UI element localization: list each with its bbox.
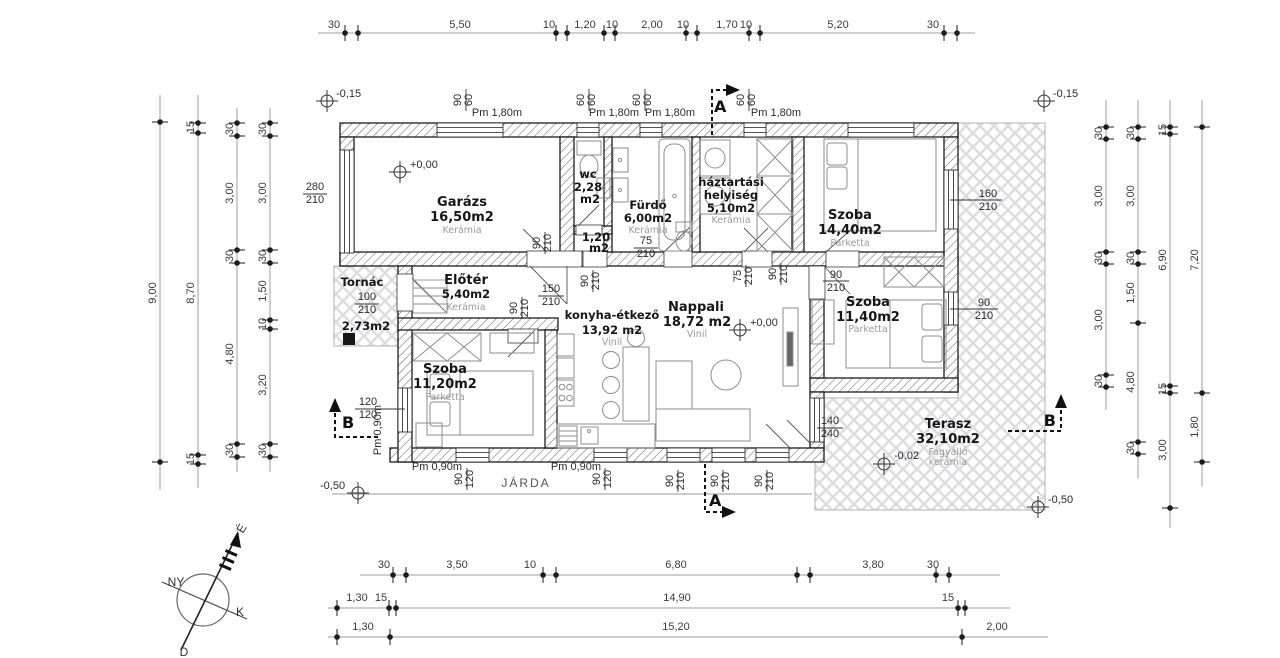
wall-bath-utility — [692, 137, 700, 252]
wardrobe-3 — [413, 333, 481, 361]
chair — [603, 377, 620, 394]
door-size: 210 — [720, 472, 732, 490]
utility-door-gap — [742, 251, 772, 267]
sofa-left — [656, 361, 692, 409]
terrace-door-3 — [756, 448, 789, 462]
dim-label: 3,20 — [257, 374, 269, 395]
compass-north: É — [233, 521, 250, 535]
dim-label: 30 — [224, 444, 236, 456]
garage-window — [437, 123, 503, 137]
dim-label: 10 — [543, 19, 555, 31]
dim-label: 4,80 — [1125, 371, 1137, 392]
door-size: 210 — [637, 248, 655, 260]
window-size: 210 — [975, 310, 993, 322]
room-name: helyiség — [704, 188, 758, 202]
dim-label: 30 — [1125, 442, 1137, 454]
dim-label: 8,70 — [185, 282, 197, 303]
dim-label: 1,30 — [352, 621, 373, 633]
room-unit: m2 — [580, 192, 600, 206]
dim-label: 3,80 — [862, 559, 883, 571]
elevation-value: -0,50 — [1048, 494, 1073, 506]
room-name: Szoba — [423, 362, 467, 377]
wall-bedroom-bottom — [810, 378, 958, 392]
room-floor: Parketta — [830, 238, 869, 249]
room-area: 16,50m2 — [430, 210, 494, 225]
parapet-label: Pm 1,80m — [751, 107, 801, 119]
door-size: 210 — [675, 472, 687, 490]
room-area: 5,10m2 — [707, 201, 755, 215]
room-floor: Kerámia — [628, 225, 667, 236]
room-area: 14,40m2 — [818, 223, 882, 238]
dim-label: 1,70 — [716, 19, 737, 31]
porch-door-gap — [397, 274, 413, 311]
dim-label: 30 — [1093, 127, 1105, 139]
window-size: 90 — [978, 297, 990, 309]
floor-plan-page: 30 5,50 10 1,20 10 2,00 10 1,70 10 5,20 … — [0, 0, 1280, 658]
door-size: 100 — [358, 291, 376, 303]
dim-label: 30 — [378, 559, 390, 571]
elevation-marker — [347, 482, 369, 504]
compass-west: NY — [168, 575, 185, 589]
door-size: 90 — [830, 269, 842, 281]
dim-label: 14,90 — [663, 592, 691, 604]
room-name: Előtér — [444, 273, 488, 288]
room-floor: Kerámia — [711, 215, 750, 226]
door-size: 210 — [519, 299, 531, 317]
elevation-value: -0,02 — [894, 450, 919, 462]
door-size: 210 — [590, 272, 602, 290]
door-size: 210 — [743, 267, 755, 285]
dim-label: 7,20 — [1189, 249, 1201, 270]
bath-door-gap — [664, 251, 692, 267]
room-area: 2,73m2 — [342, 319, 390, 333]
dim-label: 6,90 — [1157, 249, 1169, 270]
section-label: B — [1044, 411, 1056, 430]
dim-label: 30 — [224, 123, 236, 135]
dim-label: 5,20 — [827, 19, 848, 31]
wall-utility-bedroom — [792, 137, 804, 252]
kitchen-south-window — [594, 448, 627, 462]
coffee-table — [711, 360, 741, 390]
window-size: 60 — [642, 94, 654, 106]
room-name: Nappali — [668, 300, 724, 315]
elevation-value: +0,00 — [750, 317, 778, 329]
floor-plan-drawing: 30 5,50 10 1,20 10 2,00 10 1,70 10 5,20 … — [0, 0, 1280, 658]
bedroom2-door-gap — [809, 266, 825, 299]
dim-label: 2,00 — [986, 621, 1007, 633]
door-size: 150 — [542, 283, 560, 295]
dim-label: 30 — [1125, 252, 1137, 264]
room-name: Fürdő — [629, 198, 666, 212]
elevation-value: -0,50 — [320, 480, 345, 492]
dim-label: 30 — [927, 559, 939, 571]
utility-window — [744, 123, 766, 137]
terrace-door-1 — [667, 448, 700, 462]
elevation-marker — [316, 90, 338, 112]
bedroom3-south-window — [456, 448, 489, 462]
door-size: 75 — [640, 235, 652, 247]
door-size: 210 — [358, 304, 376, 316]
bedroom1-window — [848, 123, 914, 137]
window-size: 120 — [359, 409, 377, 421]
bath-window — [640, 123, 662, 137]
dim-label: 1,20 — [574, 19, 595, 31]
bottom-dimension-labels: 30 3,50 10 6,80 3,80 30 1,30 15 14,90 15… — [346, 559, 1007, 633]
room-name: háztartási — [698, 175, 764, 189]
parapet-label: Pm 0,90m — [551, 461, 601, 473]
room-area: 6,00m2 — [624, 211, 672, 225]
counter — [557, 358, 574, 378]
section-label: A — [714, 97, 727, 116]
window-size: 120 — [602, 470, 614, 488]
sidewalk-label: JÁRDA — [501, 475, 550, 490]
section-label: A — [709, 491, 722, 510]
top-dimension-labels: 30 5,50 10 1,20 10 2,00 10 1,70 10 5,20 … — [328, 19, 939, 31]
stove — [557, 380, 574, 406]
dim-label: 1,80 — [1189, 416, 1201, 437]
compass-south: D — [180, 645, 189, 658]
dim-label: 1,50 — [257, 280, 269, 301]
garage-gate — [340, 150, 354, 253]
chair — [603, 402, 620, 419]
door-size: 210 — [764, 472, 776, 490]
dim-label: 15 — [1157, 383, 1169, 395]
dim-label: 30 — [257, 250, 269, 262]
window-size: 60 — [463, 94, 475, 106]
room-name: Terasz — [925, 417, 971, 432]
room-floor: Vinil — [602, 337, 622, 348]
window-size: 160 — [979, 188, 997, 200]
elevation-value: -0,15 — [336, 88, 361, 100]
window-size: 120 — [464, 470, 476, 488]
section-label: B — [342, 413, 354, 432]
room-area: 11,40m2 — [836, 310, 900, 325]
dim-label: 1,30 — [346, 592, 367, 604]
room-name: Szoba — [828, 208, 872, 223]
dim-label: 15 — [375, 592, 387, 604]
parapet-label: Pm 1,80m — [472, 107, 522, 119]
dim-label: 30 — [927, 19, 939, 31]
room-floor: Parketta — [848, 324, 887, 335]
dim-label: 3,00 — [224, 182, 236, 203]
door-size: 210 — [542, 296, 560, 308]
room-area: 32,10m2 — [916, 432, 980, 447]
fridge — [557, 334, 574, 356]
elevation-marker — [389, 161, 411, 183]
terrace-door-2 — [712, 448, 745, 462]
dim-label: 15 — [185, 121, 197, 133]
dim-label: 10 — [257, 318, 269, 330]
dim-label: 5,50 — [449, 19, 470, 31]
room-name: wc — [579, 167, 597, 181]
toilet-tank — [577, 141, 601, 155]
dim-label: 30 — [257, 444, 269, 456]
dim-label: 10 — [677, 19, 689, 31]
dim-label: 30 — [257, 123, 269, 135]
dim-label: 9,00 — [147, 282, 159, 303]
room-area: 11,20m2 — [413, 377, 477, 392]
dim-label: 3,00 — [1093, 185, 1105, 206]
elevation-marker — [1033, 90, 1055, 112]
dim-label: 15 — [185, 453, 197, 465]
parapet-label: Pm 1,80m — [589, 107, 639, 119]
dim-label: 15 — [942, 592, 954, 604]
sofa-bottom — [656, 409, 750, 441]
door-size: 210 — [778, 265, 790, 283]
window-size: 120 — [359, 396, 377, 408]
room-floor: Vinil — [687, 329, 707, 340]
dim-label: 3,00 — [1125, 185, 1137, 206]
room-unit: m2 — [589, 241, 609, 255]
chair — [603, 352, 620, 369]
dim-label: 4,80 — [224, 343, 236, 364]
entry-door-gap — [527, 251, 582, 267]
dim-label: 2,00 — [641, 19, 662, 31]
dim-label: 30 — [328, 19, 340, 31]
parapet-label: Pm 1,80m — [645, 107, 695, 119]
wall-hall-bottom — [398, 318, 558, 330]
dim-label: 10 — [524, 559, 536, 571]
room-area: 5,40m2 — [442, 287, 490, 301]
dim-label: 3,00 — [1157, 439, 1169, 460]
door-size: 240 — [821, 428, 839, 440]
room-floor: Parketta — [425, 392, 464, 403]
room-area: 18,72 m2 — [663, 315, 731, 330]
window-size: 60 — [746, 94, 758, 106]
bath-sink-1 — [613, 148, 628, 172]
wc-window — [577, 123, 599, 137]
room-name: Garázs — [437, 195, 487, 210]
bedroom1-door-gap — [826, 251, 859, 267]
dim-label: 30 — [1093, 375, 1105, 387]
window-size: 210 — [979, 201, 997, 213]
wall-garage-wc — [560, 137, 574, 252]
parapet-label: Pm 0,90m — [412, 461, 462, 473]
window-size: 60 — [586, 94, 598, 106]
dim-label: 15 — [1157, 124, 1169, 136]
room-floor: kerámia — [929, 457, 967, 468]
room-name: Tornác — [341, 275, 384, 289]
compass-east: K — [236, 605, 244, 619]
dim-label: 10 — [606, 19, 618, 31]
room-name: konyha-étkező — [565, 308, 660, 322]
dim-label: 6,80 — [665, 559, 686, 571]
dim-label: 1,50 — [1125, 282, 1137, 303]
dim-label: 10 — [740, 19, 752, 31]
room-floor: Kerámia — [446, 302, 485, 313]
dim-label: 3,00 — [257, 182, 269, 203]
door-size: 280 — [306, 181, 324, 193]
compass: É NY K D — [162, 521, 250, 658]
room-area: 13,92 m2 — [582, 323, 642, 337]
left-dimension-labels: 9,00 15 8,70 15 30 3,00 30 4,80 30 30 3,… — [147, 121, 269, 465]
dining-table — [623, 347, 649, 421]
door-size: 210 — [306, 194, 324, 206]
bedroom1-east-window — [944, 170, 958, 229]
elevation-value: -0,15 — [1053, 88, 1078, 100]
door-size: 210 — [542, 234, 554, 252]
bedroom3-window — [398, 388, 412, 432]
door-size: 140 — [821, 415, 839, 427]
bath-sink-2 — [613, 178, 628, 202]
tv — [787, 332, 793, 366]
right-dimension-labels: 30 3,00 30 3,00 30 30 3,00 30 1,50 4,80 … — [1093, 124, 1201, 461]
porch-post — [343, 333, 355, 345]
dim-label: 3,50 — [446, 559, 467, 571]
dim-label: 30 — [1125, 127, 1137, 139]
elevation-value: +0,00 — [410, 159, 438, 171]
room-floor: Kerámia — [442, 225, 481, 236]
wall-kitchen-bedroom — [545, 330, 557, 448]
dim-label: 3,00 — [1093, 309, 1105, 330]
dim-label: 30 — [224, 250, 236, 262]
dim-label: 15,20 — [662, 621, 690, 633]
dim-label: 30 — [1093, 252, 1105, 264]
door-size: 210 — [827, 282, 845, 294]
elevation-marker — [729, 319, 751, 341]
room-name: Szoba — [846, 295, 890, 310]
